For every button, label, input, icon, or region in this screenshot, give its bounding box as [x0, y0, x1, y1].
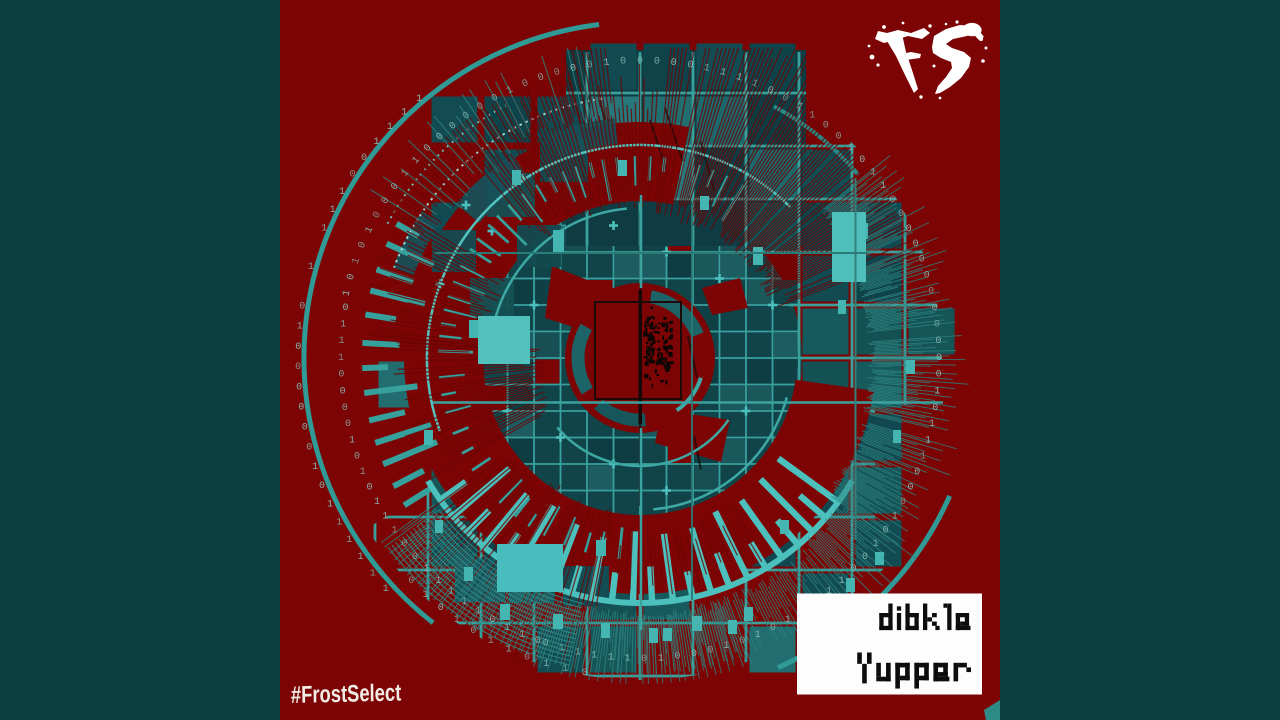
svg-text:1: 1 — [416, 94, 422, 105]
svg-text:1: 1 — [575, 648, 581, 659]
svg-text:1: 1 — [559, 644, 565, 655]
svg-text:0: 0 — [919, 255, 925, 266]
svg-text:0: 0 — [342, 403, 348, 414]
svg-text:0: 0 — [302, 423, 308, 434]
svg-text:1: 1 — [562, 664, 568, 675]
svg-text:1: 1 — [360, 467, 366, 478]
svg-text:0: 0 — [924, 271, 930, 282]
svg-text:1: 1 — [374, 497, 380, 508]
svg-text:0: 0 — [739, 636, 745, 647]
svg-text:0: 0 — [914, 467, 920, 478]
svg-text:1: 1 — [321, 224, 327, 235]
svg-text:1: 1 — [519, 630, 525, 641]
svg-text:0: 0 — [913, 239, 919, 250]
svg-text:0: 0 — [653, 56, 660, 67]
svg-text:1: 1 — [340, 320, 346, 331]
svg-text:0: 0 — [674, 652, 680, 663]
svg-text:1: 1 — [312, 462, 318, 473]
svg-text:1: 1 — [357, 552, 363, 563]
svg-text:1: 1 — [338, 353, 344, 364]
svg-text:1: 1 — [892, 512, 898, 523]
svg-text:0: 0 — [361, 153, 367, 164]
svg-text:0: 0 — [535, 636, 541, 647]
svg-text:0: 0 — [889, 195, 895, 206]
svg-text:1: 1 — [591, 651, 597, 662]
svg-text:1: 1 — [809, 111, 815, 122]
svg-text:0: 0 — [489, 615, 495, 626]
svg-text:0: 0 — [349, 170, 355, 181]
svg-text:1: 1 — [435, 576, 441, 587]
svg-text:0: 0 — [906, 224, 912, 235]
svg-text:1: 1 — [423, 564, 429, 575]
svg-text:0: 0 — [823, 121, 829, 132]
svg-text:1: 1 — [608, 653, 614, 664]
svg-text:1: 1 — [448, 587, 454, 598]
svg-text:0: 0 — [299, 302, 305, 313]
svg-text:0: 0 — [932, 403, 938, 414]
svg-text:1: 1 — [929, 419, 935, 430]
svg-text:0: 0 — [670, 58, 677, 70]
svg-text:1: 1 — [383, 584, 389, 595]
svg-text:1: 1 — [382, 512, 388, 523]
svg-text:0: 0 — [319, 481, 325, 492]
svg-text:1: 1 — [920, 451, 926, 462]
svg-text:0: 0 — [835, 131, 841, 142]
svg-text:0: 0 — [401, 539, 407, 550]
svg-text:1: 1 — [387, 122, 393, 133]
svg-text:1: 1 — [475, 606, 481, 617]
svg-text:1: 1 — [370, 568, 376, 579]
svg-text:0: 0 — [859, 155, 865, 166]
svg-text:0: 0 — [862, 552, 868, 563]
svg-text:1: 1 — [401, 107, 407, 118]
svg-text:#FrostSelect: #FrostSelect — [291, 679, 402, 709]
svg-text:1: 1 — [870, 168, 876, 179]
svg-text:1: 1 — [504, 623, 510, 634]
svg-text:0: 0 — [936, 353, 942, 364]
svg-text:0: 0 — [770, 623, 776, 634]
svg-text:0: 0 — [582, 668, 588, 679]
svg-text:0: 0 — [620, 56, 627, 67]
svg-text:0: 0 — [707, 646, 713, 657]
svg-text:0: 0 — [641, 654, 647, 665]
svg-text:1: 1 — [934, 386, 940, 397]
svg-text:1: 1 — [755, 630, 761, 641]
svg-text:0: 0 — [306, 442, 312, 453]
svg-text:1: 1 — [391, 526, 397, 537]
svg-text:1: 1 — [454, 615, 460, 626]
svg-text:0: 0 — [882, 526, 888, 537]
svg-text:0: 0 — [898, 209, 904, 220]
svg-text:0: 0 — [340, 386, 346, 397]
svg-text:0: 0 — [934, 320, 940, 331]
svg-text:1: 1 — [336, 518, 342, 529]
svg-text:1: 1 — [297, 322, 303, 333]
svg-text:1: 1 — [848, 143, 854, 154]
svg-text:1: 1 — [658, 653, 664, 664]
svg-text:0: 0 — [298, 403, 304, 414]
svg-text:0: 0 — [935, 336, 941, 347]
svg-text:1: 1 — [624, 654, 630, 665]
svg-text:0: 0 — [338, 370, 344, 381]
svg-text:0: 0 — [691, 649, 697, 660]
svg-text:0: 0 — [438, 603, 444, 614]
svg-text:1: 1 — [785, 615, 791, 626]
svg-text:0: 0 — [345, 419, 351, 430]
svg-text:0: 0 — [928, 287, 934, 298]
svg-text:0: 0 — [412, 552, 418, 563]
svg-text:0: 0 — [907, 482, 913, 493]
svg-text:1: 1 — [925, 435, 931, 446]
svg-text:0: 0 — [366, 482, 372, 493]
svg-text:1: 1 — [346, 535, 352, 546]
svg-text:1: 1 — [339, 336, 345, 347]
svg-text:1: 1 — [488, 636, 494, 647]
svg-text:0: 0 — [543, 639, 549, 650]
svg-text:1: 1 — [603, 58, 610, 70]
svg-text:0: 0 — [851, 564, 857, 575]
svg-text:0: 0 — [470, 626, 476, 637]
svg-text:0: 0 — [296, 382, 302, 393]
svg-text:1: 1 — [723, 641, 729, 652]
svg-text:1: 1 — [327, 500, 333, 511]
svg-text:1: 1 — [873, 539, 879, 550]
svg-text:1: 1 — [349, 435, 355, 446]
svg-text:0: 0 — [408, 576, 414, 587]
svg-text:1: 1 — [308, 262, 314, 273]
svg-text:0: 0 — [931, 303, 937, 314]
svg-text:0: 0 — [936, 370, 942, 381]
svg-text:1: 1 — [461, 597, 467, 608]
svg-text:1: 1 — [339, 187, 345, 198]
svg-text:0: 0 — [342, 303, 348, 314]
svg-text:0: 0 — [524, 652, 530, 663]
svg-text:1: 1 — [839, 576, 845, 587]
svg-text:1: 1 — [543, 659, 549, 670]
svg-text:1: 1 — [330, 205, 336, 216]
svg-text:0: 0 — [354, 451, 360, 462]
svg-text:1: 1 — [373, 137, 379, 148]
svg-text:1: 1 — [880, 181, 886, 192]
svg-text:0: 0 — [295, 362, 301, 373]
svg-text:0: 0 — [637, 56, 643, 67]
svg-text:0: 0 — [295, 342, 301, 353]
svg-text:0: 0 — [900, 497, 906, 508]
svg-text:1: 1 — [423, 590, 429, 601]
svg-text:1: 1 — [506, 645, 512, 656]
